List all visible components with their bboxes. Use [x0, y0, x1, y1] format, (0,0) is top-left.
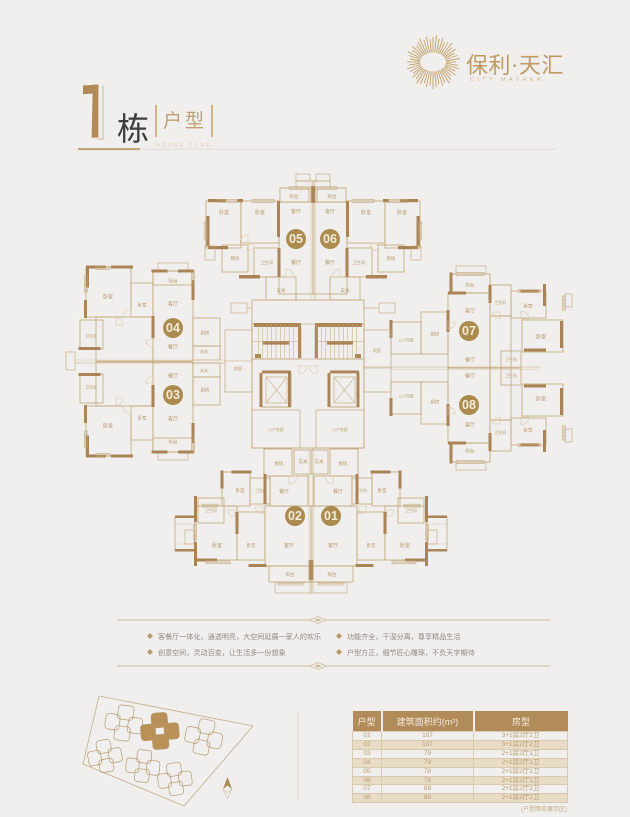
svg-text:客厅: 客厅 — [465, 422, 475, 429]
svg-text:卧室: 卧室 — [138, 302, 147, 309]
svg-text:户型方正，细节匠心雕琢，不负天字期待: 户型方正，细节匠心雕琢，不负天字期待 — [347, 648, 475, 657]
svg-text:客厅: 客厅 — [465, 308, 475, 315]
svg-text:玄关: 玄关 — [200, 348, 208, 354]
svg-text:卫生间: 卫生间 — [205, 508, 217, 513]
svg-text:02: 02 — [288, 509, 302, 523]
svg-text:厨房: 厨房 — [339, 460, 348, 467]
svg-text:卧室: 卧室 — [367, 542, 376, 549]
svg-text:玄关: 玄关 — [277, 287, 286, 294]
svg-text:客厅: 客厅 — [291, 208, 301, 215]
svg-text:餐厅: 餐厅 — [291, 259, 301, 266]
svg-text:入户花园: 入户花园 — [398, 394, 413, 399]
svg-text:餐厅: 餐厅 — [465, 357, 475, 364]
svg-text:卧室: 卧室 — [400, 542, 410, 549]
svg-text:厨房: 厨房 — [201, 387, 210, 394]
svg-text:客餐厅一体化，通透明亮，大空间延展一家人的欢乐: 客餐厅一体化，通透明亮，大空间延展一家人的欢乐 — [158, 632, 321, 641]
svg-text:餐厅: 餐厅 — [168, 373, 178, 380]
svg-text:卧室: 卧室 — [219, 209, 229, 216]
svg-text:卧室: 卧室 — [255, 209, 265, 216]
svg-text:卧室: 卧室 — [103, 294, 113, 301]
svg-text:06: 06 — [323, 232, 337, 246]
svg-text:07: 07 — [462, 324, 476, 338]
svg-text:厨房: 厨房 — [431, 331, 440, 338]
svg-text:玄关: 玄关 — [200, 367, 208, 373]
svg-text:卧室: 卧室 — [378, 487, 387, 494]
svg-text:卫生间: 卫生间 — [85, 385, 97, 390]
svg-text:餐厅: 餐厅 — [168, 344, 178, 351]
svg-text:卫生间: 卫生间 — [353, 259, 366, 266]
svg-text:入户花园: 入户花园 — [268, 427, 283, 432]
svg-text:玄关: 玄关 — [341, 287, 350, 294]
svg-text:客厅: 客厅 — [325, 208, 335, 215]
svg-text:卫生间: 卫生间 — [405, 508, 417, 513]
svg-text:客厅: 客厅 — [168, 416, 178, 423]
svg-text:卧室: 卧室 — [524, 303, 533, 310]
svg-text:餐厅: 餐厅 — [325, 259, 335, 266]
svg-text:阳台: 阳台 — [286, 571, 295, 578]
svg-text:厨房: 厨房 — [431, 399, 440, 406]
svg-text:阳台: 阳台 — [169, 278, 178, 285]
svg-text:阳台: 阳台 — [328, 571, 337, 578]
svg-text:卫生间: 卫生间 — [85, 334, 97, 339]
svg-text:入户花园: 入户花园 — [332, 427, 347, 432]
svg-text:厨房: 厨房 — [275, 460, 284, 467]
svg-text:08: 08 — [462, 398, 476, 412]
svg-text:阳台: 阳台 — [328, 193, 337, 200]
svg-text:客厅: 客厅 — [328, 542, 338, 549]
svg-text:卧室: 卧室 — [524, 427, 533, 434]
svg-text:厨房: 厨房 — [201, 330, 210, 337]
svg-text:前室: 前室 — [373, 347, 381, 353]
svg-text:卧室: 卧室 — [103, 423, 113, 430]
svg-text:阳台: 阳台 — [169, 439, 178, 446]
svg-text:03: 03 — [166, 388, 180, 402]
svg-text:卧室: 卧室 — [247, 542, 256, 549]
svg-text:餐厅: 餐厅 — [333, 488, 343, 495]
svg-text:卫生间: 卫生间 — [261, 259, 274, 266]
svg-text:阳台: 阳台 — [466, 282, 475, 289]
svg-text:厨房: 厨房 — [231, 255, 240, 262]
svg-text:功能齐全，干湿分离，尊享精品生活: 功能齐全，干湿分离，尊享精品生活 — [347, 632, 461, 641]
svg-text:前室: 前室 — [234, 365, 242, 371]
svg-text:阳台: 阳台 — [466, 448, 475, 455]
svg-text:餐厅: 餐厅 — [279, 488, 289, 495]
svg-text:创意空间，灵动百变，让生活多一份想象: 创意空间，灵动百变，让生活多一份想象 — [158, 648, 286, 657]
svg-text:厨房: 厨房 — [387, 255, 396, 262]
svg-text:卧室: 卧室 — [236, 487, 245, 494]
svg-text:卧室: 卧室 — [397, 209, 407, 216]
svg-text:入户花园: 入户花园 — [398, 338, 413, 343]
svg-text:01: 01 — [324, 509, 338, 523]
svg-text:客厅: 客厅 — [168, 301, 178, 308]
svg-text:卧室: 卧室 — [536, 396, 546, 403]
svg-text:卫生间: 卫生间 — [494, 300, 506, 305]
svg-text:卫生间: 卫生间 — [494, 430, 506, 435]
svg-text:餐厅: 餐厅 — [465, 373, 475, 380]
svg-text:阳台: 阳台 — [290, 193, 299, 200]
svg-text:卧室: 卧室 — [536, 334, 546, 341]
svg-text:玄关: 玄关 — [315, 458, 324, 465]
svg-text:卧室: 卧室 — [212, 542, 222, 549]
svg-text:客厅: 客厅 — [284, 542, 294, 549]
svg-text:05: 05 — [289, 232, 303, 246]
svg-text:玄关: 玄关 — [299, 458, 308, 465]
svg-text:卧室: 卧室 — [138, 415, 147, 422]
svg-text:04: 04 — [166, 321, 180, 335]
svg-text:卧室: 卧室 — [361, 209, 371, 216]
